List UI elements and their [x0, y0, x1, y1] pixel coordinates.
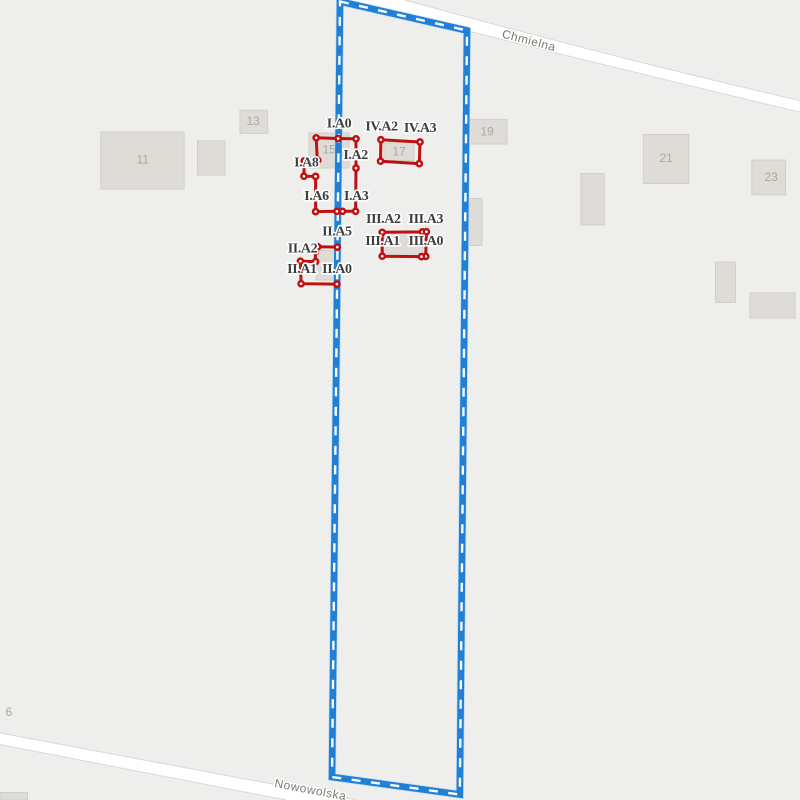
- svg-text:I.A2: I.A2: [343, 148, 368, 163]
- svg-text:III.A1: III.A1: [365, 234, 400, 249]
- svg-text:I.A0: I.A0: [327, 117, 352, 132]
- svg-text:17: 17: [393, 145, 407, 159]
- svg-text:III.A0: III.A0: [409, 234, 444, 249]
- svg-text:21: 21: [660, 151, 674, 165]
- svg-text:15: 15: [323, 143, 337, 157]
- svg-text:I.A3: I.A3: [344, 189, 369, 204]
- svg-text:IV.A3: IV.A3: [404, 121, 437, 136]
- svg-text:I.A8: I.A8: [294, 155, 319, 170]
- svg-text:II.A5: II.A5: [322, 225, 352, 240]
- svg-text:II.A0: II.A0: [322, 262, 352, 277]
- svg-text:II.A2: II.A2: [288, 242, 318, 257]
- svg-text:III.A3: III.A3: [409, 212, 444, 227]
- svg-text:11: 11: [137, 153, 150, 167]
- svg-text:23: 23: [765, 170, 779, 184]
- svg-text:6: 6: [6, 705, 13, 719]
- svg-text:13: 13: [247, 114, 261, 128]
- svg-text:II.A1: II.A1: [287, 262, 317, 277]
- svg-text:III.A2: III.A2: [366, 212, 401, 227]
- svg-text:19: 19: [481, 125, 495, 139]
- svg-text:I.A6: I.A6: [304, 189, 329, 204]
- svg-text:IV.A2: IV.A2: [365, 119, 398, 134]
